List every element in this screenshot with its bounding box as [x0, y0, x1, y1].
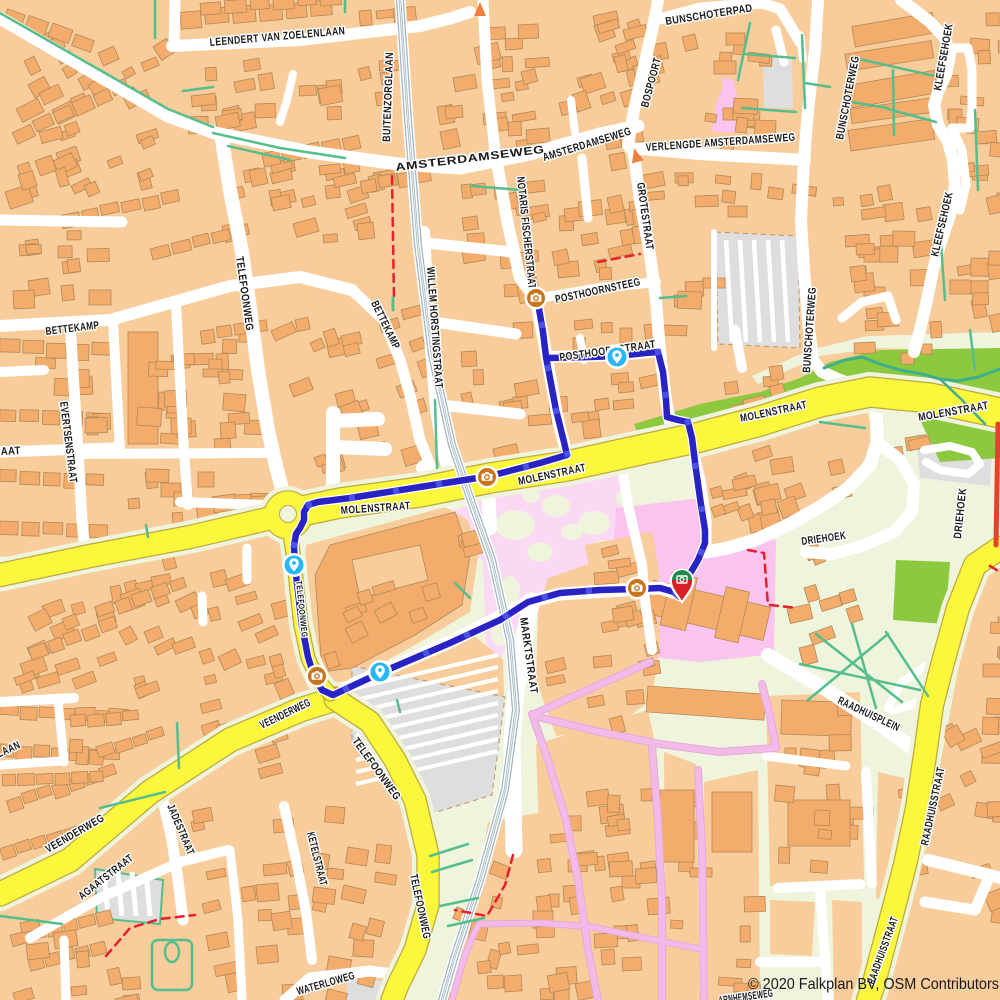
svg-text:© 2020 Falkplan BV, OSM Contri: © 2020 Falkplan BV, OSM Contributors	[748, 976, 999, 993]
svg-text:AAT: AAT	[1, 445, 22, 458]
